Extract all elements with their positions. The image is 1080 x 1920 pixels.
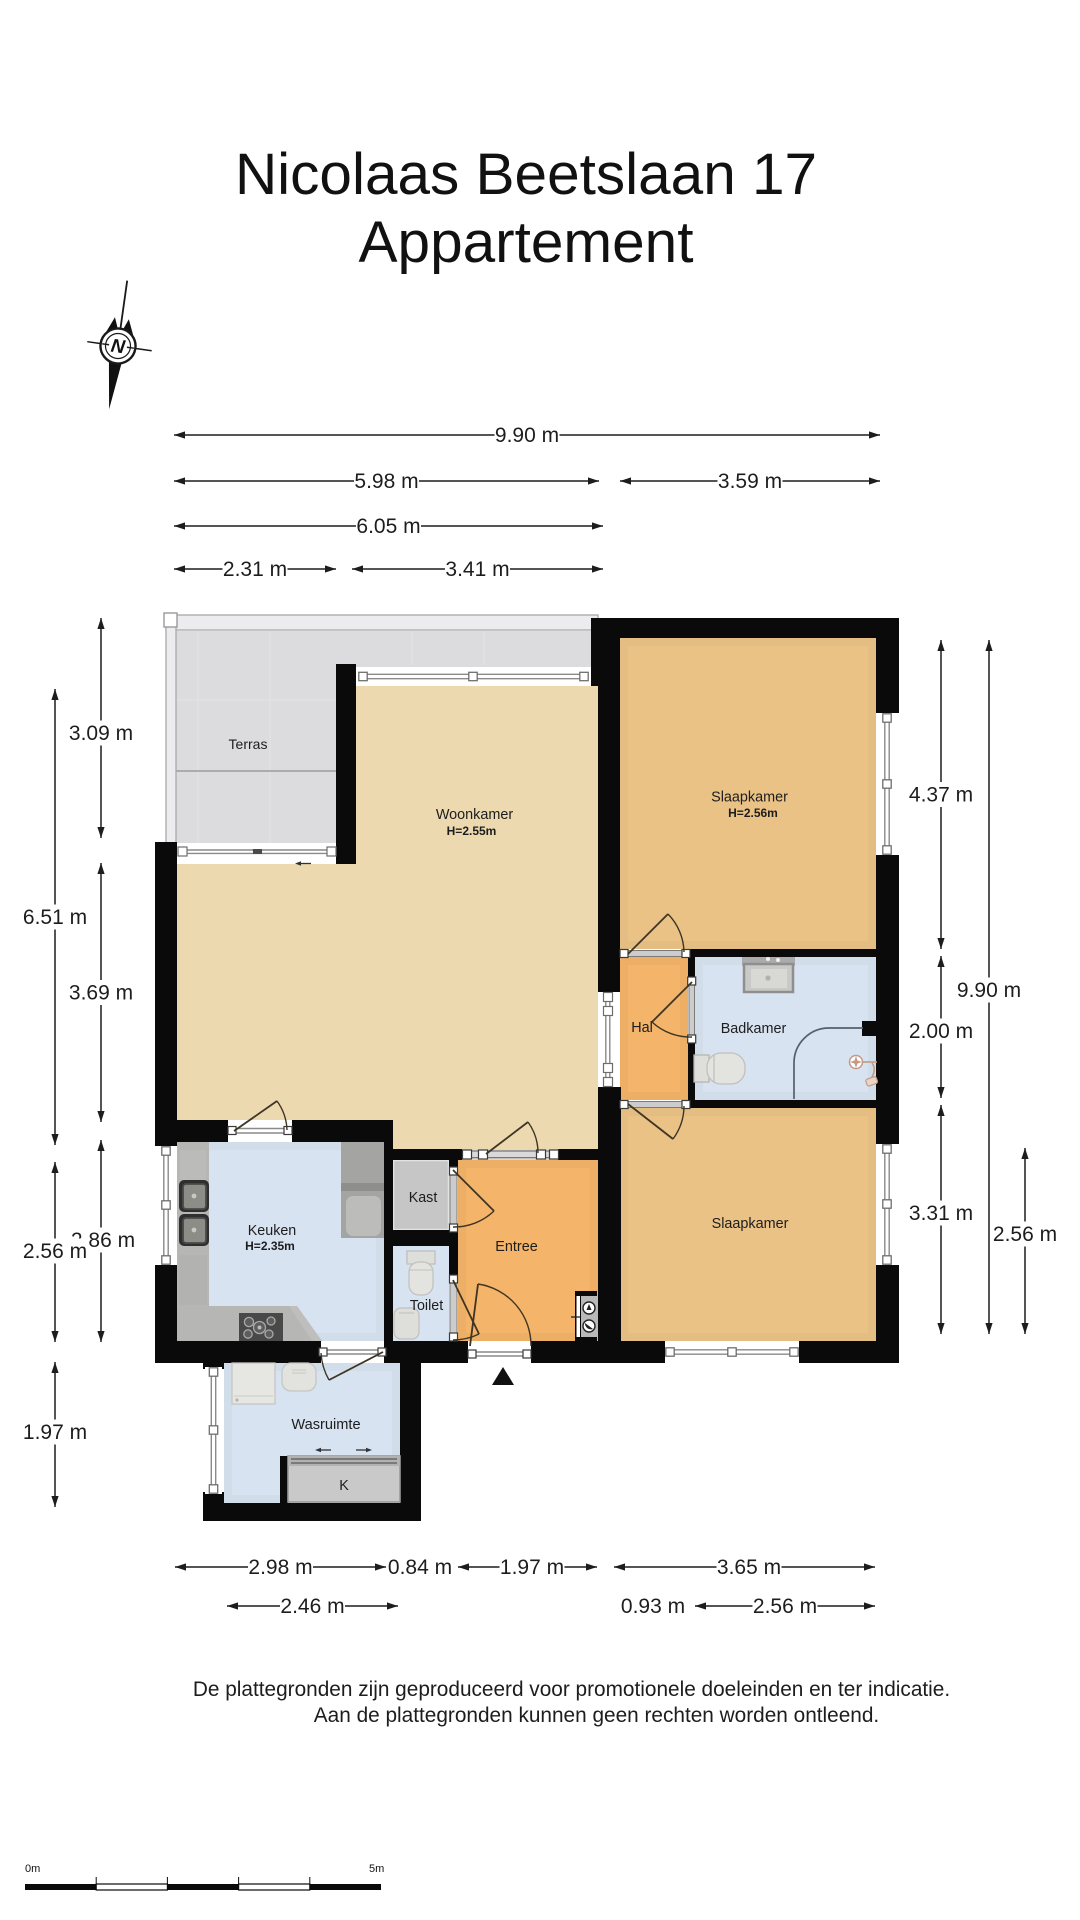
svg-text:2.56 m: 2.56 m [753, 1595, 817, 1618]
svg-text:Entree: Entree [495, 1239, 537, 1255]
svg-text:Hal: Hal [631, 1020, 653, 1036]
svg-text:0.93 m: 0.93 m [621, 1595, 685, 1618]
svg-text:6.51 m: 6.51 m [23, 906, 87, 929]
svg-text:K: K [339, 1478, 349, 1494]
svg-text:2.98 m: 2.98 m [248, 1556, 312, 1579]
svg-text:9.90 m: 9.90 m [957, 979, 1021, 1002]
svg-text:1.97 m: 1.97 m [500, 1556, 564, 1579]
svg-text:Terras: Terras [229, 736, 268, 752]
svg-text:Keuken: Keuken [248, 1223, 297, 1239]
svg-text:0m: 0m [25, 1863, 40, 1875]
svg-text:2.00 m: 2.00 m [909, 1020, 973, 1043]
svg-text:4.37 m: 4.37 m [909, 784, 973, 807]
svg-text:2.31 m: 2.31 m [223, 558, 287, 581]
svg-text:Wasruimte: Wasruimte [291, 1417, 360, 1433]
svg-text:Woonkamer: Woonkamer [436, 807, 514, 823]
svg-text:6.05 m: 6.05 m [356, 515, 420, 538]
svg-text:Slaapkamer: Slaapkamer [711, 790, 788, 806]
svg-text:Slaapkamer: Slaapkamer [712, 1216, 789, 1232]
svg-text:H=2.35m: H=2.35m [245, 1239, 295, 1253]
svg-text:0.84 m: 0.84 m [388, 1556, 452, 1579]
svg-text:3.09 m: 3.09 m [69, 722, 133, 745]
svg-text:Toilet: Toilet [410, 1298, 443, 1314]
svg-text:De plattegronden zijn geproduc: De plattegronden zijn geproduceerd voor … [193, 1678, 950, 1701]
svg-text:1.97 m: 1.97 m [23, 1421, 87, 1444]
svg-text:2.56 m: 2.56 m [993, 1223, 1057, 1246]
svg-text:H=2.56m: H=2.56m [728, 806, 778, 820]
svg-text:Nicolaas Beetslaan 17: Nicolaas Beetslaan 17 [235, 142, 817, 207]
svg-text:3.69 m: 3.69 m [69, 982, 133, 1005]
svg-text:H=2.55m: H=2.55m [447, 824, 497, 838]
svg-text:Kast: Kast [409, 1190, 438, 1206]
svg-text:Aan de plattegronden kunnen ge: Aan de plattegronden kunnen geen rechten… [314, 1704, 879, 1727]
svg-text:3.41 m: 3.41 m [445, 558, 509, 581]
svg-text:9.90 m: 9.90 m [495, 424, 559, 447]
svg-text:3.59 m: 3.59 m [718, 470, 782, 493]
svg-text:2.56 m: 2.56 m [23, 1240, 87, 1263]
svg-text:3.31 m: 3.31 m [909, 1202, 973, 1225]
svg-text:5m: 5m [369, 1863, 384, 1875]
svg-text:Badkamer: Badkamer [721, 1021, 787, 1037]
svg-text:5.98 m: 5.98 m [354, 470, 418, 493]
svg-text:3.65 m: 3.65 m [717, 1556, 781, 1579]
svg-text:Appartement: Appartement [359, 210, 694, 275]
svg-text:2.46 m: 2.46 m [280, 1595, 344, 1618]
